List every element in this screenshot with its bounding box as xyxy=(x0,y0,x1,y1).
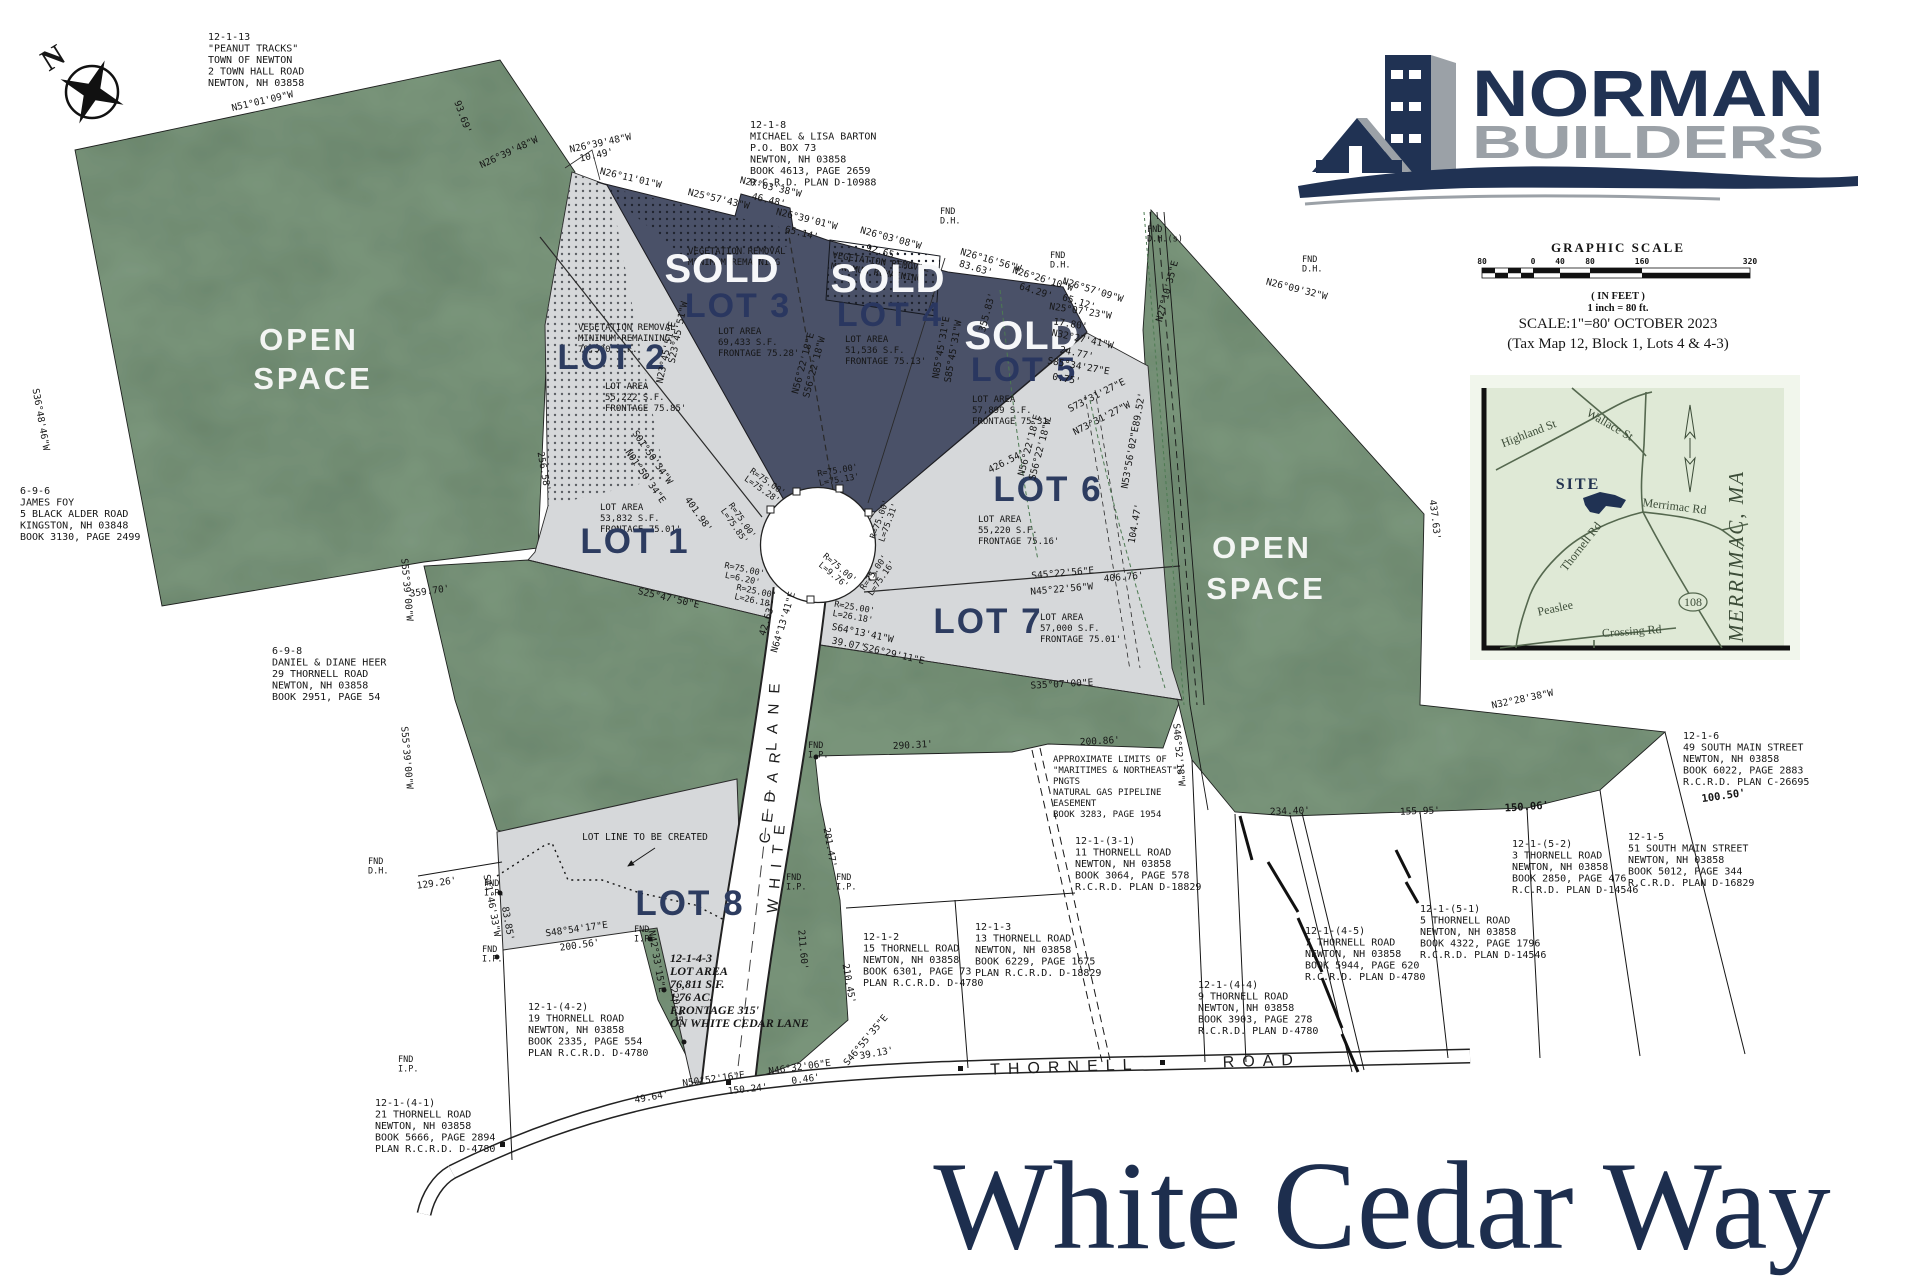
plat-map-canvas: 12-1-13"PEANUT TRACKS"TOWN OF NEWTON2 TO… xyxy=(0,0,1920,1286)
lot3-name: LOT 3 xyxy=(685,287,791,325)
map-label-105: 437.63' xyxy=(1427,499,1443,540)
logo-sub: BUILDERS xyxy=(1472,116,1824,168)
map-label-101: 234.40' xyxy=(1270,805,1310,817)
map-label-116: 80 xyxy=(1477,257,1487,266)
plan-title: White Cedar Way xyxy=(933,1137,1830,1276)
open-space-right-line2: SPACE xyxy=(1206,571,1326,606)
parcel-12-1-2: 12-1-215 THORNELL ROADNEWTON, NH 03858BO… xyxy=(863,932,983,989)
map-label-100: S46°52'18"W xyxy=(1170,723,1186,787)
map-text-block-40: FNDD.H. xyxy=(368,857,388,877)
parcel-12-1-4-4: 12-1-(4-4)9 THORNELL ROADNEWTON, NH 0385… xyxy=(1198,980,1318,1037)
map-label-94: 129.26' xyxy=(416,875,457,891)
parcel-12-1-3: 12-1-313 THORNELL ROADNEWTON, NH 03858BO… xyxy=(975,922,1101,979)
map-label-98: S36°48'46"W xyxy=(30,388,52,452)
map-text-block-42: FNDI.P. xyxy=(482,945,502,965)
map-label-97: S55°39'00"W xyxy=(398,726,414,790)
scale-in-feet: ( IN FEET ) xyxy=(1591,291,1645,302)
open-space-right-line1: OPEN xyxy=(1212,530,1312,565)
locus-map xyxy=(1470,375,1800,660)
open-space-left-line2: SPACE xyxy=(253,361,373,396)
map-label-89: 290.31' xyxy=(893,739,934,752)
lot2-name: LOT 2 xyxy=(557,338,666,377)
scale-line2: (Tax Map 12, Block 1, Lots 4 & 4-3) xyxy=(1507,336,1728,352)
map-label-104: 100.50' xyxy=(1701,787,1747,805)
lot1-name: LOT 1 xyxy=(580,522,689,561)
map-text-block-39: FNDD.H. xyxy=(1302,255,1322,275)
graphic-scale-heading: GRAPHIC SCALE xyxy=(1551,240,1685,255)
parcel-12-1-3-1: 12-1-(3-1)11 THORNELL ROADNEWTON, NH 038… xyxy=(1075,836,1201,893)
lot7-name: LOT 7 xyxy=(933,602,1042,641)
map-text-block-37: FNDD.H. xyxy=(1050,251,1070,271)
map-label-102: 155.95' xyxy=(1400,805,1440,817)
parcel-12-1-5-2: 12-1-(5-2)3 THORNELL ROADNEWTON, NH 0385… xyxy=(1512,839,1638,896)
scale-bar xyxy=(1482,268,1750,278)
plat-svg: 12-1-13"PEANUT TRACKS"TOWN OF NEWTON2 TO… xyxy=(0,0,1920,1286)
locus-route-108: 108 xyxy=(1684,595,1702,609)
map-label-121: 320 xyxy=(1743,257,1758,266)
logo-swoosh-gray xyxy=(1305,196,1720,204)
lot6-name: LOT 6 xyxy=(993,470,1102,509)
parcel-12-1-4-2: 12-1-(4-2)19 THORNELL ROADNEWTON, NH 038… xyxy=(528,1002,648,1059)
map-label-118: 40 xyxy=(1555,257,1565,266)
map-label-90: 200.86' xyxy=(1080,735,1121,748)
scale-line1: SCALE:1"=80' OCTOBER 2023 xyxy=(1519,316,1718,332)
parcel-12-1-13: 12-1-13"PEANUT TRACKS"TOWN OF NEWTON2 TO… xyxy=(208,32,304,89)
sold-lot4: SOLD xyxy=(830,257,945,301)
map-label-120: 160 xyxy=(1635,257,1650,266)
map-text-block-46: FNDI.P. xyxy=(836,873,856,893)
lot-line-note: LOT LINE TO BE CREATED xyxy=(582,832,708,843)
map-text-block-47: FNDI.P. xyxy=(398,1055,418,1075)
compass-icon xyxy=(61,61,124,124)
scale-inch-eq: 1 inch = 80 ft. xyxy=(1587,303,1648,314)
compass-n: N xyxy=(35,38,71,78)
thornell-road-label-2: ROAD xyxy=(1222,1052,1301,1072)
sold-lot3: SOLD xyxy=(664,247,779,291)
map-label-96: S55°39'00"W xyxy=(398,558,414,622)
cul-de-sac xyxy=(761,488,876,603)
locus-site-label: SITE xyxy=(1556,476,1600,493)
lot8-name: LOT 8 xyxy=(635,884,744,923)
gas-easement-note: APPROXIMATE LIMITS OF"MARITIMES & NORTHE… xyxy=(1053,755,1183,820)
parcel-12-1-8: 12-1-8MICHAEL & LISA BARTONP.O. BOX 73NE… xyxy=(750,120,876,189)
parcel-12-1-6: 12-1-649 SOUTH MAIN STREETNEWTON, NH 038… xyxy=(1683,731,1809,788)
parcel-12-1-4-5: 12-1-(4-5)7 THORNELL ROADNEWTON, NH 0385… xyxy=(1305,926,1425,983)
locus-merrimac-ma: MERRIMAC, MA xyxy=(1724,470,1748,643)
map-text-block-36: FNDD.H. xyxy=(940,207,960,227)
map-label-99: N32°28'38"W xyxy=(1491,688,1555,712)
map-label-119: 80 xyxy=(1585,257,1595,266)
open-space-left-line1: OPEN xyxy=(259,322,359,357)
parcel-12-1-5-1: 12-1-(5-1)5 THORNELL ROADNEWTON, NH 0385… xyxy=(1420,904,1546,961)
parcel-6-9-8: 6-9-8DANIEL & DIANE HEER29 THORNELL ROAD… xyxy=(272,646,387,703)
parcel-12-1-4-1: 12-1-(4-1)21 THORNELL ROADNEWTON, NH 038… xyxy=(375,1098,495,1155)
parcel-12-1-5: 12-1-551 SOUTH MAIN STREETNEWTON, NH 038… xyxy=(1628,832,1754,889)
map-label-109: N26°09'32"W xyxy=(1265,277,1329,303)
map-label-117: 0 xyxy=(1531,257,1536,266)
parcel-6-9-6: 6-9-6JAMES FOY5 BLACK ALDER ROADKINGSTON… xyxy=(20,486,140,543)
lot4-name: LOT 4 xyxy=(837,296,943,334)
map-label-103: 150.06' xyxy=(1504,799,1549,814)
